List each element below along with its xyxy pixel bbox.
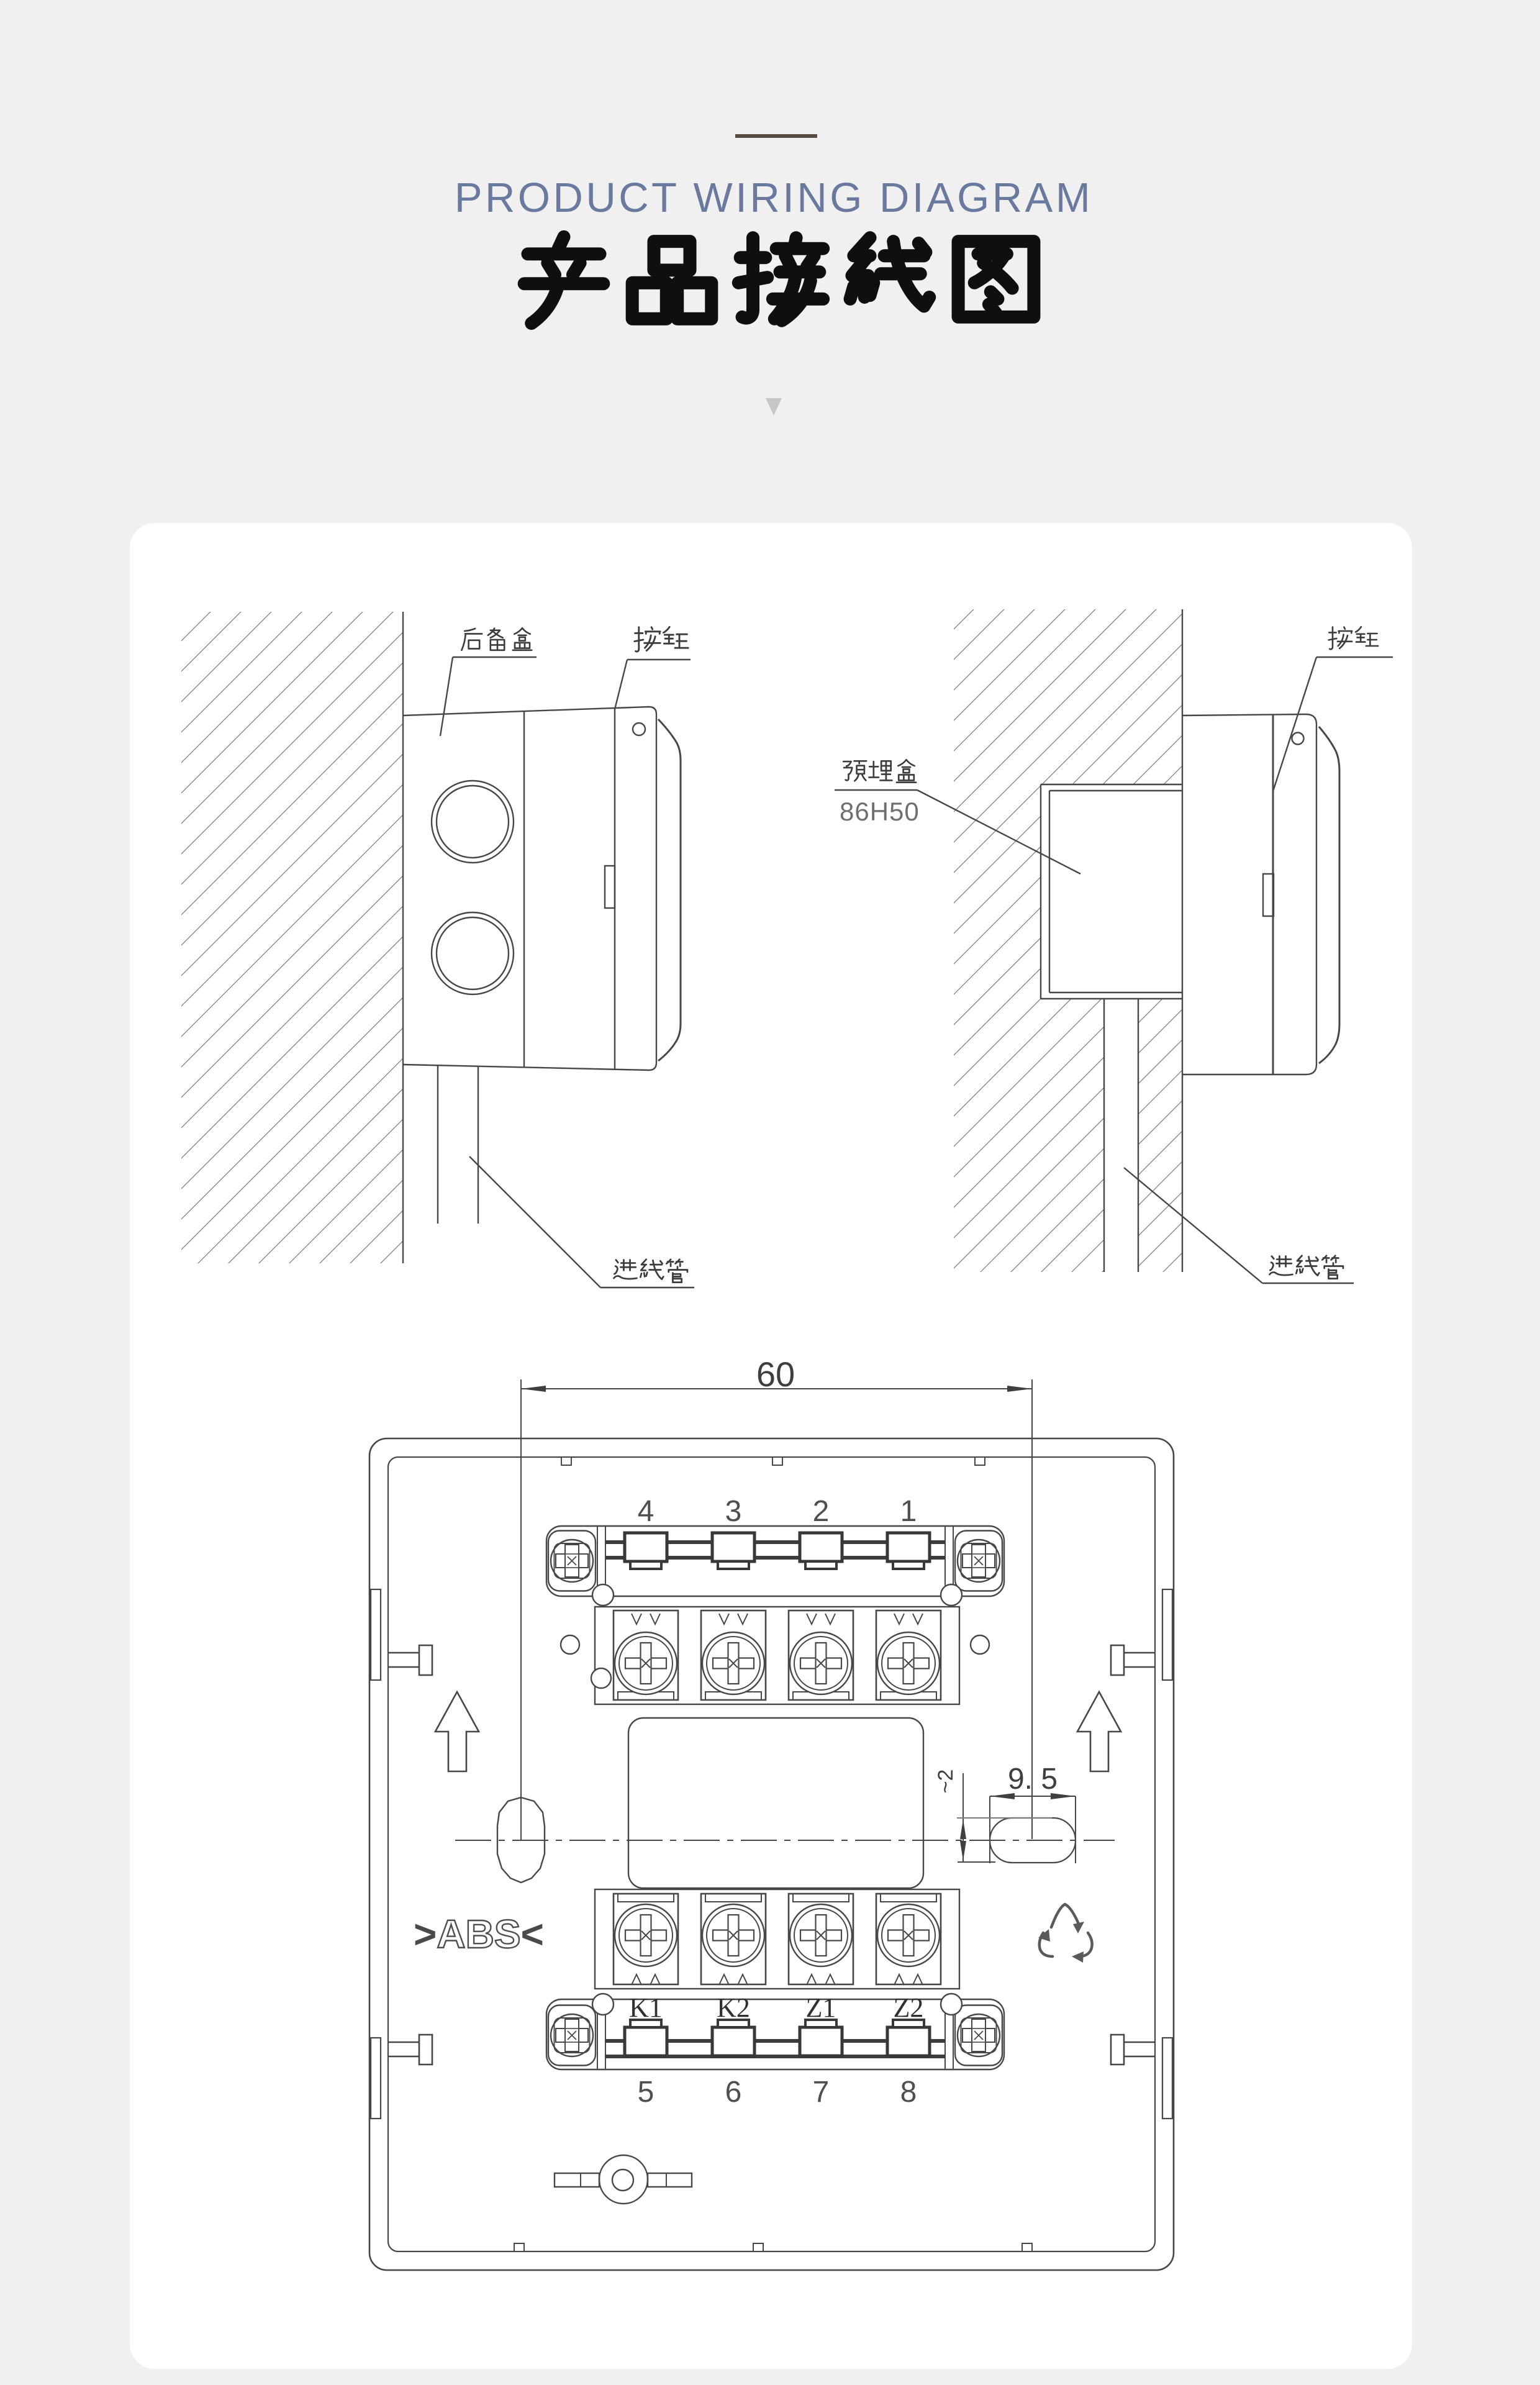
svg-text:8: 8 [900,2076,917,2109]
svg-text:2: 2 [813,1495,830,1528]
svg-text:4: 4 [638,1495,654,1528]
svg-text:60: 60 [756,1355,795,1394]
svg-text:9. 5: 9. 5 [1008,1763,1058,1796]
svg-text:K1: K1 [629,1992,663,2023]
svg-text:>ABS<: >ABS< [414,1912,544,1956]
svg-text:6: 6 [725,2076,742,2109]
svg-text:PRODUCT WIRING DIAGRAM: PRODUCT WIRING DIAGRAM [455,175,1093,221]
svg-text:3: 3 [725,1495,742,1528]
svg-text:1: 1 [900,1495,917,1528]
svg-text:Z2: Z2 [894,1992,924,2023]
svg-text:Z1: Z1 [806,1992,836,2023]
svg-text:5: 5 [638,2076,654,2109]
svg-text:7: 7 [813,2076,830,2109]
svg-text:K2: K2 [717,1992,750,2023]
svg-text:~2: ~2 [934,1769,958,1794]
svg-text:86H50: 86H50 [840,797,920,826]
